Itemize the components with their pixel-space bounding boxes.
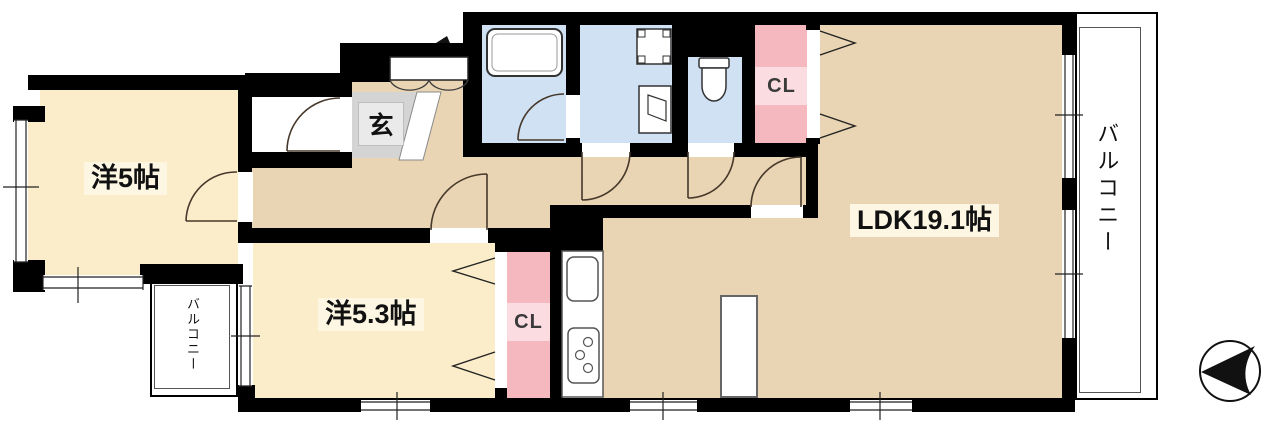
closet-bedroom-door-track [495, 250, 507, 390]
door-opening-bathroom [566, 95, 580, 138]
room-label-ldk: LDK19.1帖 [850, 204, 999, 237]
door-opening-washroom [582, 143, 630, 157]
wall [495, 388, 507, 398]
wall [463, 143, 818, 157]
wall [463, 12, 1075, 25]
wall [806, 155, 818, 207]
wall [340, 43, 390, 82]
wall [390, 43, 470, 57]
balcony-left-label: バルコニー [184, 297, 199, 372]
entrance-label-box: 玄 [358, 102, 404, 146]
wall [28, 75, 252, 90]
kitchen-counter-icon [562, 251, 603, 397]
wall [13, 260, 45, 292]
room-western5-floor-strip [28, 122, 42, 260]
wall [1062, 178, 1075, 210]
wall [238, 152, 352, 168]
kitchen-sink [567, 257, 598, 301]
wall [140, 264, 243, 284]
toilet-floor [688, 57, 742, 143]
door-opening-toilet [688, 143, 734, 157]
room-label-western5: 洋5帖 [84, 162, 167, 195]
washroom-floor [580, 25, 672, 143]
door-entrance [287, 98, 340, 151]
room-label-western53: 洋5.3帖 [318, 298, 424, 331]
ldk-floor-lower [603, 218, 1062, 398]
wall [245, 73, 352, 97]
north-arrow-icon [1200, 341, 1260, 401]
wall [806, 25, 820, 30]
wall [1062, 338, 1075, 398]
entrance-label: 玄 [368, 106, 393, 142]
door-opening-ldk [751, 205, 803, 218]
wall [1062, 15, 1075, 55]
closet-bedroom-label: CL [507, 306, 550, 338]
wall [566, 25, 580, 95]
wall [238, 385, 255, 398]
wall [550, 243, 563, 398]
closet-hall-door-track [807, 30, 820, 138]
door-opening-western5 [238, 172, 253, 222]
wall [495, 243, 507, 252]
door-opening-entrance [340, 97, 352, 152]
wall [238, 398, 1075, 412]
wall [742, 25, 755, 143]
wall-notch [436, 36, 450, 43]
closet-hall-label: CL [755, 70, 808, 102]
wall [672, 12, 748, 57]
wall [603, 205, 751, 218]
door-opening-western53 [430, 228, 488, 243]
bathroom-floor [482, 25, 566, 143]
wall [806, 138, 820, 144]
balcony-right-label: バルコニー [1094, 122, 1119, 257]
kitchen-stove [568, 328, 599, 383]
wall [672, 57, 688, 143]
wall [463, 25, 482, 155]
wall [13, 106, 45, 122]
floor-plan-canvas: 洋5帖 洋5.3帖 LDK19.1帖 玄 CL CL バルコニー バルコニー [0, 0, 1270, 425]
